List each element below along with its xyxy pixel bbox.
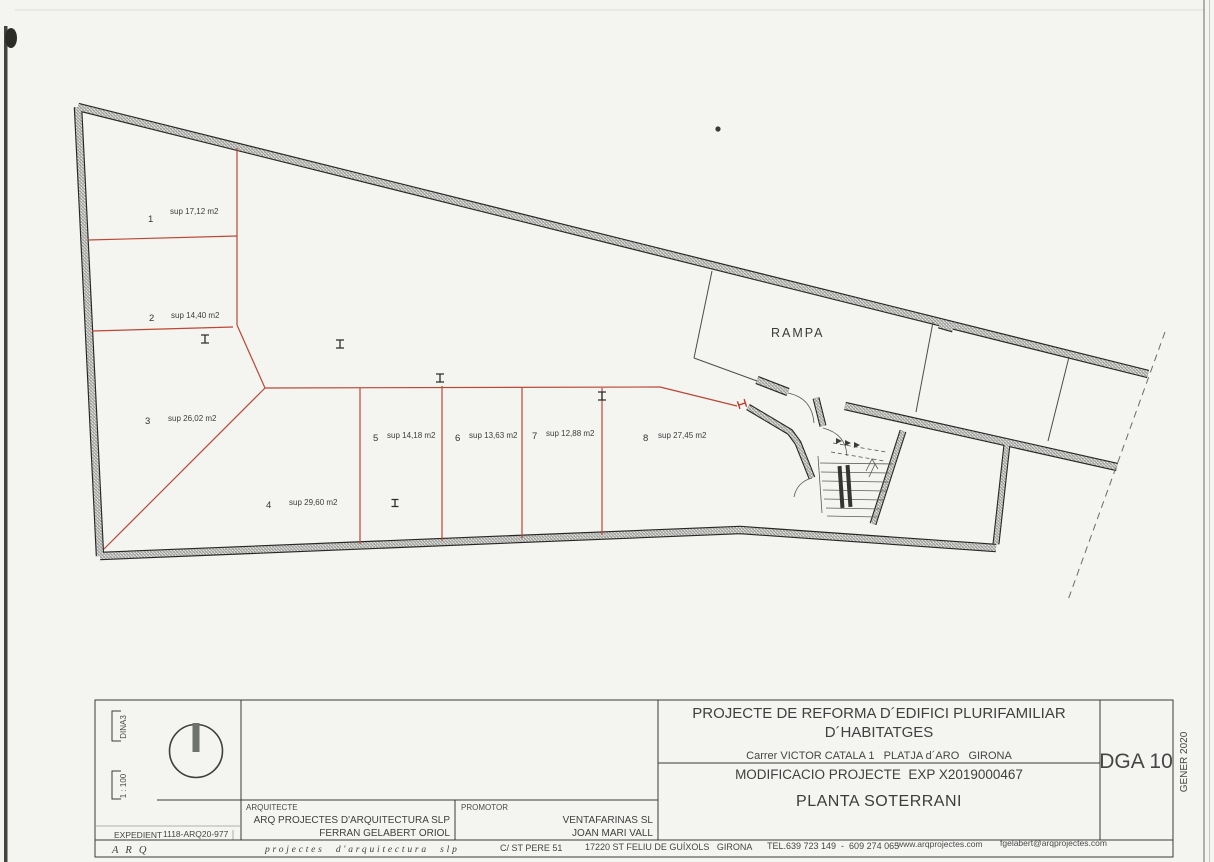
space-7-number: 7 [532, 431, 537, 442]
drawing-sheet: 1 sup 17,12 m2 2 sup 14,40 m2 3 sup 26,0… [0, 0, 1214, 862]
promoter-label: PROMOTOR [461, 803, 508, 812]
footer-street: C/ ST PERE 51 [500, 843, 562, 853]
address-line: Carrer VICTOR CATALA 1 PLATJA d´ARO GIRO… [746, 750, 1012, 762]
project-title-line2: D´HABITATGES [825, 724, 934, 741]
drawing-number: DGA 10 [1099, 750, 1173, 773]
architect-firm: ARQ PROJECTES D'ARQUITECTURA SLP [254, 815, 451, 826]
modification-line: MODIFICACIO PROJECTE EXP X2019000467 [735, 767, 1023, 782]
architect-label: ARQUITECTE [246, 803, 298, 812]
paper-size-label: DINA3 [119, 715, 128, 739]
footer-website: www.arqprojectes.com [896, 839, 983, 849]
space-6-area: sup 13,63 m2 [469, 431, 518, 440]
space-3-number: 3 [145, 416, 150, 427]
footer-phone: TEL.639 723 149 - 609 274 065 [767, 841, 899, 851]
space-2-number: 2 [149, 313, 154, 324]
promoter-firm: VENTAFARINAS SL [563, 815, 654, 826]
space-5-area: sup 14,18 m2 [387, 431, 436, 440]
scan-speck [715, 126, 720, 131]
architect-name: FERRAN GELABERT ORIOL [319, 828, 450, 839]
space-8-area: sup 27,45 m2 [658, 431, 707, 440]
space-7-area: sup 12,88 m2 [546, 429, 595, 438]
space-5-number: 5 [373, 433, 378, 444]
expedient-number: 1118-ARQ20-977 [163, 829, 229, 839]
sheet-title: PLANTA SOTERRANI [796, 793, 962, 810]
footer-email: fgelabert@arqprojectes.com [1000, 838, 1107, 848]
space-1-area: sup 17,12 m2 [170, 207, 219, 216]
footer-city: 17220 ST FELIU DE GUÍXOLS GIRONA [585, 842, 752, 852]
scale-label: 1 : 100 [119, 773, 128, 798]
space-6-number: 6 [455, 433, 460, 444]
promoter-name: JOAN MARI VALL [572, 828, 653, 839]
space-1-number: 1 [148, 214, 153, 225]
expedient-label: EXPEDIENT [114, 830, 162, 840]
space-4-area: sup 29,60 m2 [289, 498, 338, 507]
space-8-number: 8 [643, 433, 648, 444]
space-2-area: sup 14,40 m2 [171, 311, 220, 320]
footer-firm-name: projectes d'arquitectura slp [264, 845, 460, 855]
footer-firm-acronym: ARQ [111, 845, 153, 856]
space-3-area: sup 26,02 m2 [168, 414, 217, 423]
ramp-label: RAMPA [771, 326, 825, 340]
project-title-line1: PROJECTE DE REFORMA D´EDIFICI PLURIFAMIL… [692, 705, 1066, 722]
space-4-number: 4 [266, 500, 271, 511]
date-vertical: GENER 2020 [1179, 731, 1190, 792]
